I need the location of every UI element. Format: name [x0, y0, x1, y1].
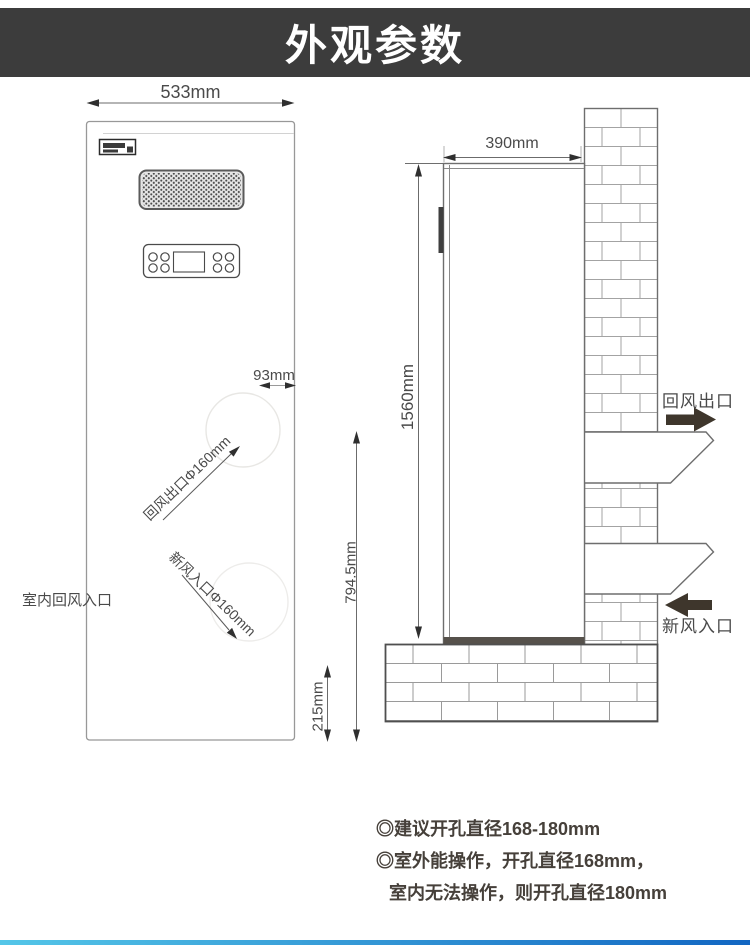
return-air-outlet-label: 回风出口	[662, 387, 734, 412]
fresh-air-duct	[584, 544, 714, 595]
return-air-duct	[584, 432, 714, 483]
note-line: 室内无法操作，则开孔直径180mm	[376, 877, 667, 909]
note-line: ◎室外能操作，开孔直径168mm，	[376, 845, 667, 877]
dim-93-label: 93mm	[248, 367, 300, 384]
base-platform	[386, 645, 658, 722]
dim-1560-label: 1560mm	[398, 361, 418, 433]
dim-794-label: 794.5mm	[343, 536, 360, 610]
page-title: 外观参数	[285, 12, 465, 73]
diagram-linework	[0, 0, 750, 945]
dim-215-label: 215mm	[310, 677, 327, 737]
note-line: ◎建议开孔直径168-180mm	[376, 813, 667, 845]
dim-390-label: 390mm	[442, 135, 582, 153]
control-panel	[144, 245, 240, 278]
brand-logo	[100, 140, 136, 155]
front-view	[87, 122, 295, 741]
side-cabinet	[405, 164, 585, 646]
header-bar: 外观参数	[0, 8, 750, 77]
indoor-return-inlet-label: 室内回风入口	[22, 589, 112, 610]
dim-533-label: 533mm	[86, 82, 295, 103]
air-grille	[140, 171, 244, 210]
side-handle	[439, 207, 444, 253]
drill-hole-notes: ◎建议开孔直径168-180mm ◎室外能操作，开孔直径168mm， 室内无法操…	[376, 813, 667, 909]
fresh-air-inlet-label: 新风入口	[662, 612, 734, 637]
spec-diagram-page: 外观参数 533mm 93mm 回风出口Φ160mm 新风入口Φ160mm 室内…	[0, 0, 750, 945]
front-cabinet-outline	[87, 122, 295, 741]
bottom-accent-bar	[0, 940, 750, 945]
